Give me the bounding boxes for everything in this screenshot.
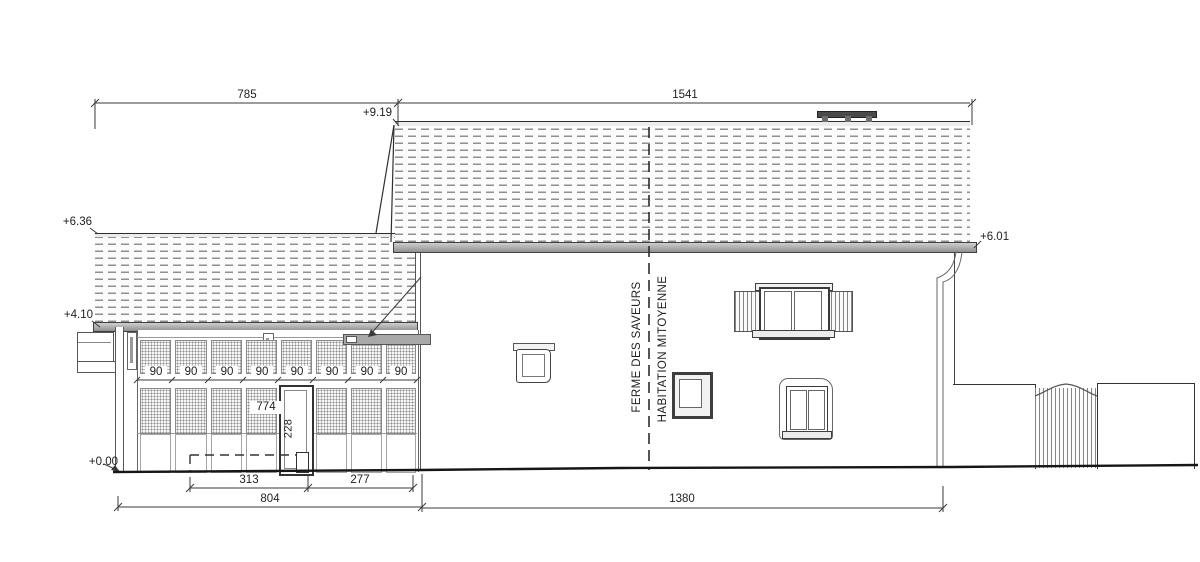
level-label-main-eave: +6.01 bbox=[980, 231, 1022, 244]
dim-label-804: 804 bbox=[240, 493, 300, 506]
gable-edge bbox=[376, 125, 394, 242]
door-width-label: 774 bbox=[250, 401, 282, 414]
linework-layer bbox=[0, 0, 1200, 562]
bay-dim-label: 90 bbox=[286, 366, 308, 379]
level-label-left-eave: +4.10 bbox=[59, 309, 93, 322]
leader-arrowheads bbox=[111, 329, 377, 472]
bay-dim-label: 90 bbox=[216, 366, 238, 379]
sliding-door-dashed bbox=[190, 455, 296, 471]
right-building-label: HABITATION MITOYENNE bbox=[655, 269, 671, 429]
gate-arch bbox=[1035, 384, 1097, 396]
bay-dim-label: 90 bbox=[356, 366, 378, 379]
bay-dim-label: 90 bbox=[390, 366, 412, 379]
level-label-main-ridge: +9.19 bbox=[350, 107, 392, 120]
door-height-label: 228 bbox=[282, 409, 295, 449]
level-label-ground: +0.00 bbox=[80, 456, 118, 469]
downspout bbox=[937, 252, 962, 467]
bay-dim-label: 90 bbox=[251, 366, 273, 379]
dim-label-313: 313 bbox=[219, 474, 279, 487]
dimension-lines bbox=[91, 99, 976, 512]
bay-dim-label: 90 bbox=[180, 366, 202, 379]
dim-label-785: 785 bbox=[217, 89, 277, 102]
bay-dim-label: 90 bbox=[321, 366, 343, 379]
leader-lines bbox=[90, 119, 981, 471]
dim-label-277: 277 bbox=[330, 474, 390, 487]
bay-dim-label: 90 bbox=[145, 366, 167, 379]
elevation-drawing: 785 1541 +9.19 +6.36 +4.10 +6.01 +0.00 9… bbox=[0, 0, 1200, 562]
level-label-left-ridge: +6.36 bbox=[58, 216, 92, 229]
ground-line bbox=[113, 465, 1198, 472]
dim-label-1380: 1380 bbox=[652, 493, 712, 506]
left-building-label: FERME DES SAVEURS bbox=[629, 267, 645, 427]
dim-label-1541: 1541 bbox=[655, 89, 715, 102]
